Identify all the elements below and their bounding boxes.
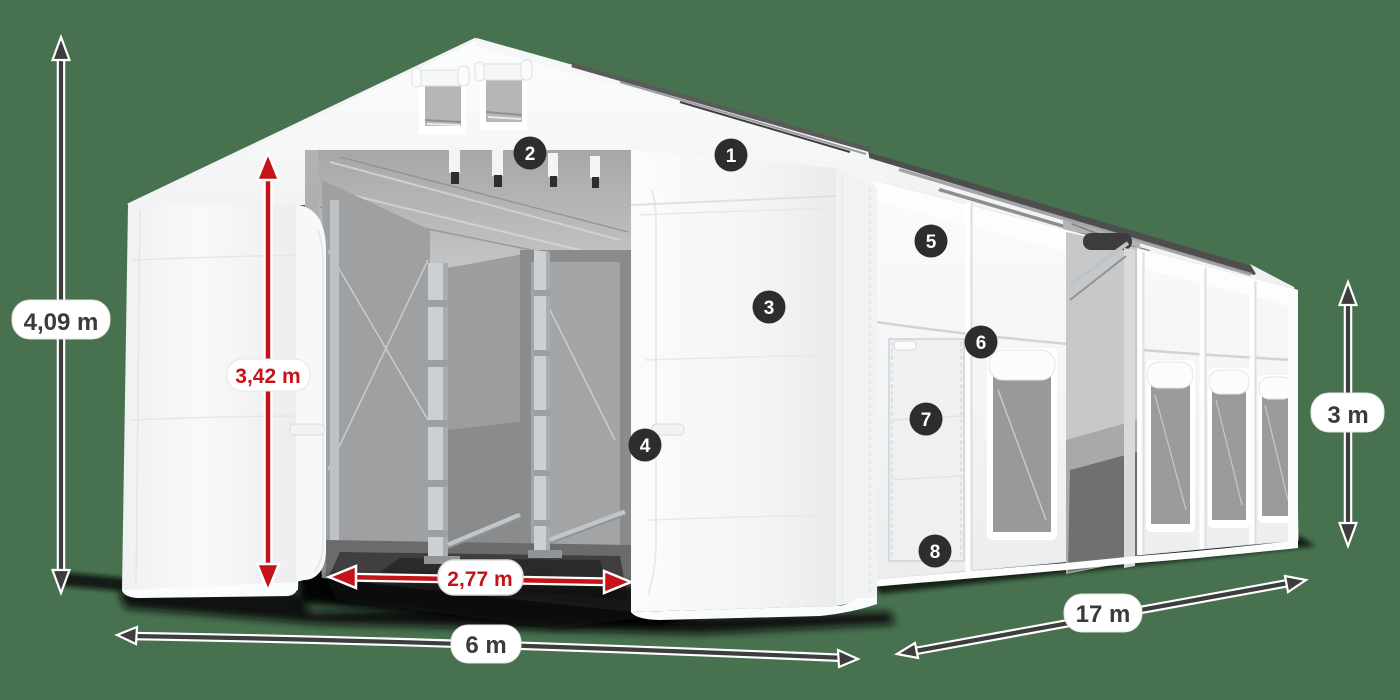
svg-text:7: 7: [921, 410, 932, 431]
svg-text:5: 5: [926, 232, 937, 253]
svg-text:4: 4: [640, 436, 651, 457]
svg-text:3,42 m: 3,42 m: [235, 365, 300, 388]
svg-text:17 m: 17 m: [1076, 601, 1131, 628]
svg-text:1: 1: [726, 146, 737, 167]
svg-text:3 m: 3 m: [1327, 402, 1368, 429]
svg-text:4,09 m: 4,09 m: [24, 309, 99, 336]
svg-text:2: 2: [525, 144, 536, 165]
svg-text:6: 6: [976, 333, 987, 354]
svg-text:3: 3: [764, 298, 775, 319]
svg-text:6 m: 6 m: [465, 632, 506, 659]
svg-text:2,77 m: 2,77 m: [447, 568, 512, 591]
svg-text:8: 8: [930, 542, 941, 563]
